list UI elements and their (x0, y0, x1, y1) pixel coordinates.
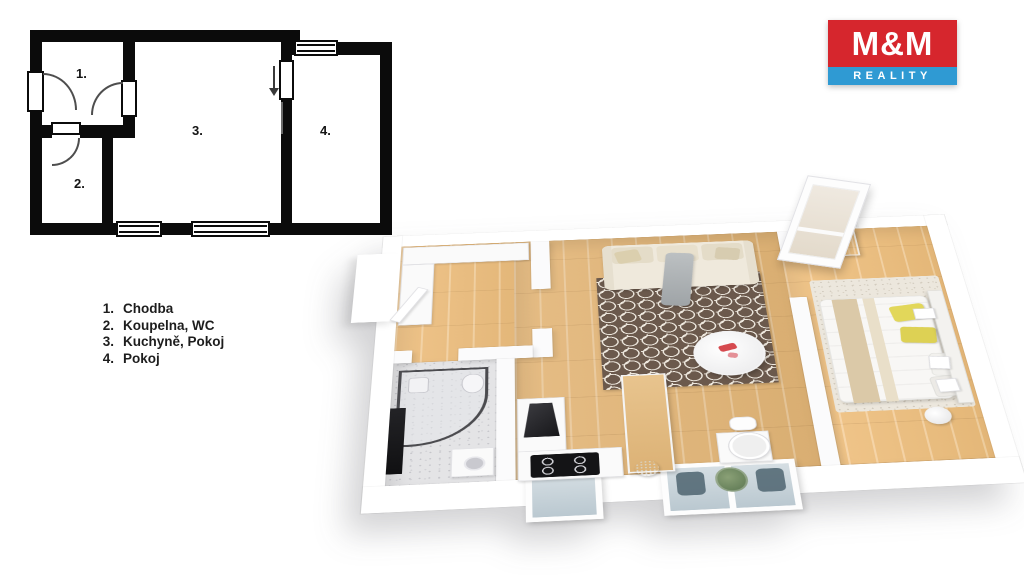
wall-living-bedroom-lower (789, 297, 840, 466)
yellow-pillow (900, 327, 937, 343)
yellow-pillow (888, 303, 929, 322)
2d-wall-top (30, 30, 300, 42)
2d-window-lines (194, 225, 267, 233)
dining-table (621, 373, 676, 473)
legend-item: 4. Pokoj (96, 351, 224, 368)
toilet (461, 373, 484, 393)
legend-number: 4. (96, 351, 114, 368)
range-hood (523, 402, 559, 437)
bedroom-rug (809, 275, 976, 412)
window-sash-bar (797, 227, 844, 237)
beige-bed-runner (831, 299, 880, 403)
white-pillow (929, 374, 965, 397)
2d-wall-hall-bath-right (80, 125, 135, 138)
armchair-silhouette-right (755, 468, 787, 492)
2d-door-arc-entrance (43, 73, 77, 110)
2d-wall-left-lower (30, 110, 42, 235)
sofa (602, 240, 760, 290)
headboard-wall-unit (927, 290, 975, 403)
mm-reality-logo: M&M REALITY (828, 20, 957, 85)
shower-enclosure (394, 367, 488, 448)
red-decor (718, 342, 738, 352)
legend-number: 2. (96, 318, 114, 335)
honeycomb-rug (596, 272, 779, 390)
outer-wall-top (383, 215, 947, 248)
2d-door-hall-living (121, 80, 137, 117)
round-mirror (728, 432, 772, 460)
entrance-door-leaf (389, 287, 428, 323)
armchair-silhouette-left (676, 471, 707, 495)
2d-door-leaf-line (281, 102, 283, 134)
2d-entrance-arrow-line (273, 66, 275, 90)
legend-label: Koupelna, WC (123, 318, 215, 335)
2d-wall-living-bedroom-upper (281, 42, 292, 62)
2d-wall-bath-living (102, 138, 113, 235)
2d-wall-hall-living-upper (123, 42, 135, 82)
wall-hall-living-lower (532, 328, 553, 357)
wall-hall-living-upper (531, 241, 551, 290)
wall-hall-bath-left (393, 350, 412, 363)
2d-room-label-1: 1. (76, 66, 87, 81)
2d-wall-right (380, 42, 392, 235)
2d-door-arc-hall-living (91, 82, 123, 115)
sofa-back-cushion (701, 243, 745, 261)
bed (819, 295, 955, 403)
2d-room-label-4: 4. (320, 123, 331, 138)
2d-door-living-bedroom (279, 60, 294, 100)
wall-bath-living (496, 358, 516, 481)
2d-door-arc-hall-bath (52, 138, 80, 166)
2d-entrance-arrow-head (269, 88, 279, 96)
floor-plan-2d: 1. 2. 3. 4. (30, 30, 392, 235)
sofa-pillow (613, 249, 642, 264)
floating-shelf (912, 308, 936, 319)
legend-item: 2. Koupelna, WC (96, 318, 224, 335)
vanity-table (716, 431, 773, 464)
2d-room-label-3: 3. (192, 123, 203, 138)
bathroom-sink (408, 377, 429, 393)
legend-number: 1. (96, 301, 114, 318)
logo-bottom-text: REALITY (828, 67, 957, 85)
floating-shelf (935, 378, 961, 393)
tilted-window-glass (788, 184, 861, 260)
legend-label: Pokoj (123, 351, 160, 368)
logo-top-text: M&M (828, 20, 957, 67)
legend-label: Chodba (123, 301, 173, 318)
vanity-stool (728, 416, 757, 431)
sofa-back-cushion (611, 246, 654, 264)
sofa-arm-right (743, 240, 760, 284)
outer-wall-right (924, 215, 1024, 484)
bathroom-floor (385, 346, 516, 486)
outer-wall-left (361, 236, 402, 514)
2d-window-bedroom-top (294, 40, 338, 56)
entrance-vestibule (351, 253, 401, 323)
2d-window-bottom-left (116, 221, 162, 237)
tilted-window (777, 175, 871, 268)
cooktop (530, 452, 600, 478)
kitchen-counter (518, 447, 624, 482)
window-mullion (724, 466, 736, 508)
2d-window-bottom-right (191, 221, 270, 237)
room-legend: 1. Chodba 2. Koupelna, WC 3. Kuchyně, Po… (96, 301, 224, 367)
outer-wall-bottom (361, 457, 1024, 514)
2d-room-label-2: 2. (74, 176, 85, 191)
window-bay-kitchen (525, 468, 603, 523)
2d-entrance-door-frame (27, 71, 44, 112)
coffee-table (691, 329, 769, 376)
sofa-pillow (714, 247, 740, 260)
floating-shelf (928, 356, 951, 369)
washing-machine (451, 447, 495, 477)
2d-window-lines (119, 225, 159, 233)
sofa-back-cushion (656, 245, 699, 263)
bedroom-ottoman (922, 406, 953, 425)
living-room-floor (514, 232, 822, 480)
hall-wardrobe-side (398, 264, 434, 326)
pink-decor (727, 352, 738, 358)
white-pillow (929, 353, 961, 376)
legend-number: 3. (96, 334, 114, 351)
hall-wardrobe-top (402, 243, 529, 265)
2d-window-lines (297, 44, 335, 52)
2d-door-hall-bath (51, 122, 81, 135)
dark-wall-panel (386, 408, 406, 475)
sofa-arm-left (602, 246, 615, 290)
page: { "page": {"background": "#ffffff"}, "lo… (0, 0, 1024, 576)
legend-label: Kuchyně, Pokoj (123, 334, 224, 351)
window-bay-living (660, 459, 803, 516)
gray-throw-blanket (661, 253, 694, 307)
legend-item: 1. Chodba (96, 301, 224, 318)
kitchen-tall-cabinet (517, 397, 567, 456)
wall-hall-bath-right (458, 345, 533, 361)
decor-sphere (635, 460, 660, 477)
light-bed-runner (862, 298, 899, 402)
hallway-floor (393, 242, 532, 364)
2d-wall-left-upper (30, 30, 42, 73)
apartment-3d-scene (361, 215, 1024, 514)
potted-plant (714, 467, 750, 493)
washer-drum (464, 456, 486, 471)
legend-item: 3. Kuchyně, Pokoj (96, 334, 224, 351)
